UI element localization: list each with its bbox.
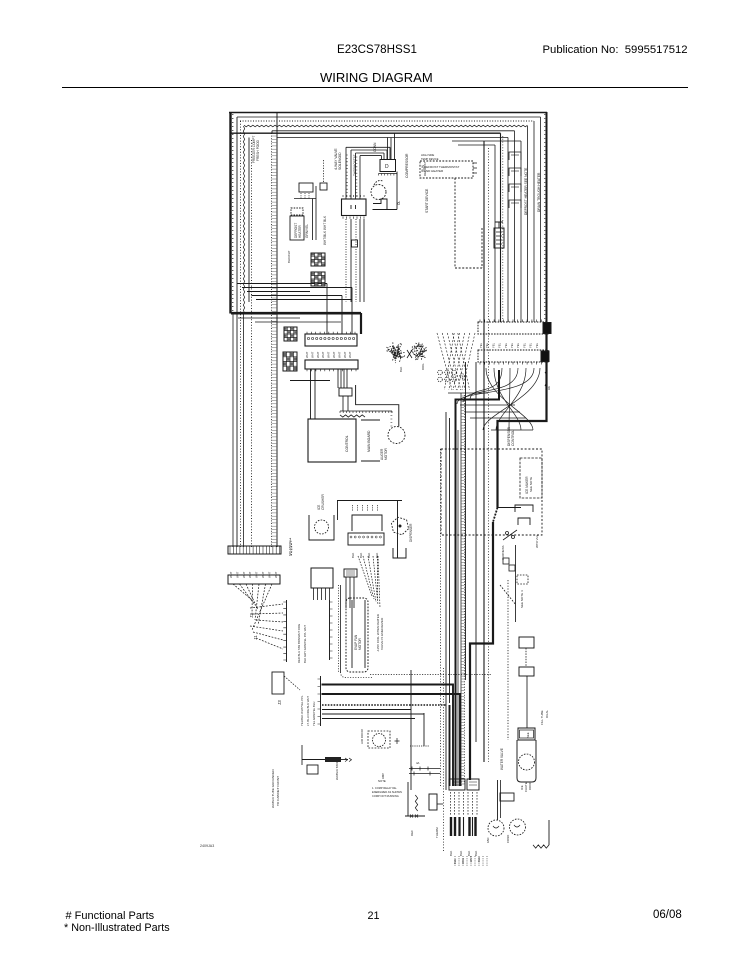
svg-text:SEE: SEE bbox=[526, 732, 530, 738]
svg-text:MOTOR: MOTOR bbox=[358, 637, 362, 650]
svg-text:YEL: YEL bbox=[485, 342, 489, 348]
svg-text:DEFROST HEATER SEE NOTE: DEFROST HEATER SEE NOTE bbox=[524, 167, 528, 215]
svg-text:AA: AA bbox=[547, 386, 551, 390]
svg-text:J1: J1 bbox=[253, 635, 258, 640]
svg-text:RED BLU TAN BRN/WHT ORG: RED BLU TAN BRN/WHT ORG bbox=[297, 624, 301, 663]
svg-text:AIR DOOR: AIR DOOR bbox=[360, 728, 364, 744]
svg-text:ORG: ORG bbox=[421, 364, 425, 370]
svg-text:SOLENOID: SOLENOID bbox=[338, 152, 342, 170]
svg-text:YEL: YEL bbox=[516, 342, 520, 348]
svg-text:CONTROL: CONTROL bbox=[511, 430, 515, 446]
svg-text:CONTROL: CONTROL bbox=[345, 435, 349, 452]
svg-text:YEL: YEL bbox=[535, 342, 539, 348]
svg-text:BLK: BLK bbox=[375, 553, 379, 558]
svg-text:AND HEATER: AND HEATER bbox=[424, 169, 444, 173]
svg-text:WATER TUBE GROUNDED: WATER TUBE GROUNDED bbox=[271, 768, 275, 808]
svg-text:YEL: YEL bbox=[510, 342, 514, 348]
svg-text:WHT: WHT bbox=[321, 351, 325, 358]
svg-text:DEF: DEF bbox=[410, 830, 414, 836]
svg-text:BLK: BLK bbox=[459, 851, 463, 856]
svg-text:YEL GRN/YEL BLU: YEL GRN/YEL BLU bbox=[312, 702, 316, 726]
svg-text:HIGH SIDE: HIGH SIDE bbox=[421, 153, 435, 157]
svg-text:YEL: YEL bbox=[504, 342, 508, 348]
svg-text:WHT: WHT bbox=[348, 351, 352, 358]
svg-text:BLK: BLK bbox=[399, 367, 403, 372]
svg-text:BLK: BLK bbox=[351, 553, 355, 558]
svg-text:YEL: YEL bbox=[491, 342, 495, 348]
svg-text:WTR VLV: WTR VLV bbox=[535, 535, 539, 548]
svg-text:DISPENSER: DISPENSER bbox=[409, 523, 413, 542]
svg-text:ORG: ORG bbox=[461, 858, 465, 864]
svg-text:VALVE IS ENERGIZED: VALVE IS ENERGIZED bbox=[380, 617, 384, 650]
svg-text:WHT: WHT bbox=[327, 351, 331, 358]
svg-text:CRUSHER: CRUSHER bbox=[321, 494, 325, 510]
svg-text:OL: OL bbox=[397, 201, 401, 205]
svg-text:SEE NOTE 4: SEE NOTE 4 bbox=[520, 590, 524, 608]
svg-text:2409JA3: 2409JA3 bbox=[200, 844, 214, 848]
svg-text:WATER VALVE: WATER VALVE bbox=[500, 748, 504, 770]
svg-text:YEL: YEL bbox=[498, 342, 502, 348]
svg-text:YEL: YEL bbox=[479, 342, 483, 348]
svg-text:BLK: BLK bbox=[367, 553, 371, 558]
svg-text:WHT: WHT bbox=[343, 351, 347, 358]
svg-text:WHT: WHT bbox=[316, 351, 320, 358]
svg-text:WATER TANK: WATER TANK bbox=[335, 759, 339, 780]
svg-text:BLK: BLK bbox=[474, 851, 478, 856]
svg-text:START DEVICE: START DEVICE bbox=[425, 188, 429, 213]
svg-text:WHT: WHT bbox=[332, 351, 336, 358]
svg-text:YEL: YEL bbox=[529, 342, 533, 348]
svg-text:COMP NOT RUNNING: COMP NOT RUNNING bbox=[372, 794, 399, 798]
svg-text:BLU: BLU bbox=[477, 857, 481, 862]
svg-text:DOOR: DOOR bbox=[528, 782, 532, 790]
svg-text:YEL: YEL bbox=[522, 342, 526, 348]
svg-text:THERM: THERM bbox=[435, 827, 439, 838]
svg-text:1. COMP RELAY DE-: 1. COMP RELAY DE- bbox=[372, 786, 397, 790]
svg-text:LT. BLU ORG BLK WHT: LT. BLU ORG BLK WHT bbox=[306, 696, 310, 726]
svg-text:D: D bbox=[385, 164, 389, 170]
svg-text:SEE NOTE: SEE NOTE bbox=[529, 477, 533, 492]
svg-text:COMPRESSOR: COMPRESSOR bbox=[405, 153, 409, 178]
svg-text:WHT: WHT bbox=[305, 351, 309, 358]
svg-text:TO CABINET FRONT: TO CABINET FRONT bbox=[276, 776, 280, 806]
svg-text:WHT/BLK WHT BLK: WHT/BLK WHT BLK bbox=[323, 215, 327, 245]
svg-text:FRESH FOOD: FRESH FOOD bbox=[256, 139, 260, 161]
svg-text:BLK: BLK bbox=[359, 553, 363, 558]
svg-text:FILL TUBE: FILL TUBE bbox=[540, 710, 544, 725]
svg-text:THERMOSTAT: THERMOSTAT bbox=[353, 154, 357, 176]
svg-text:ENERGIZED AS SHOWN: ENERGIZED AS SHOWN bbox=[372, 790, 402, 794]
svg-text:BLK/WHT: BLK/WHT bbox=[287, 250, 291, 263]
svg-text:GRN/YEL: GRN/YEL bbox=[305, 224, 309, 238]
svg-text:BLK GRY GRN/YEL PPL WHT: BLK GRY GRN/YEL PPL WHT bbox=[303, 625, 307, 663]
svg-text:BLK: BLK bbox=[453, 859, 457, 864]
svg-text:HEATER: HEATER bbox=[298, 225, 302, 238]
svg-text:COND: COND bbox=[506, 835, 510, 843]
svg-text:CONN: CONN bbox=[373, 142, 377, 152]
svg-text:AMP: AMP bbox=[381, 773, 385, 779]
svg-text:MAIN BOARD: MAIN BOARD bbox=[367, 430, 371, 452]
svg-text:YEL/BLK WHT/YEL PPL: YEL/BLK WHT/YEL PPL bbox=[300, 695, 304, 726]
svg-text:WHT: WHT bbox=[337, 351, 341, 358]
svg-text:J3: J3 bbox=[277, 700, 282, 705]
svg-text:WHT: WHT bbox=[310, 351, 314, 358]
svg-text:DRAIN TROUGH HEATER: DRAIN TROUGH HEATER bbox=[537, 172, 541, 212]
svg-text:BLK: BLK bbox=[467, 851, 471, 856]
svg-text:DUAL: DUAL bbox=[545, 710, 549, 718]
svg-text:J2: J2 bbox=[249, 613, 254, 618]
svg-text:4A: 4A bbox=[416, 761, 420, 765]
svg-text:FAN: FAN bbox=[486, 838, 490, 843]
svg-text:TEMP DEVICE: TEMP DEVICE bbox=[421, 157, 439, 161]
svg-text:WHT: WHT bbox=[469, 856, 473, 862]
svg-text:MOTOR: MOTOR bbox=[384, 447, 388, 460]
svg-text:BLK: BLK bbox=[449, 851, 453, 856]
